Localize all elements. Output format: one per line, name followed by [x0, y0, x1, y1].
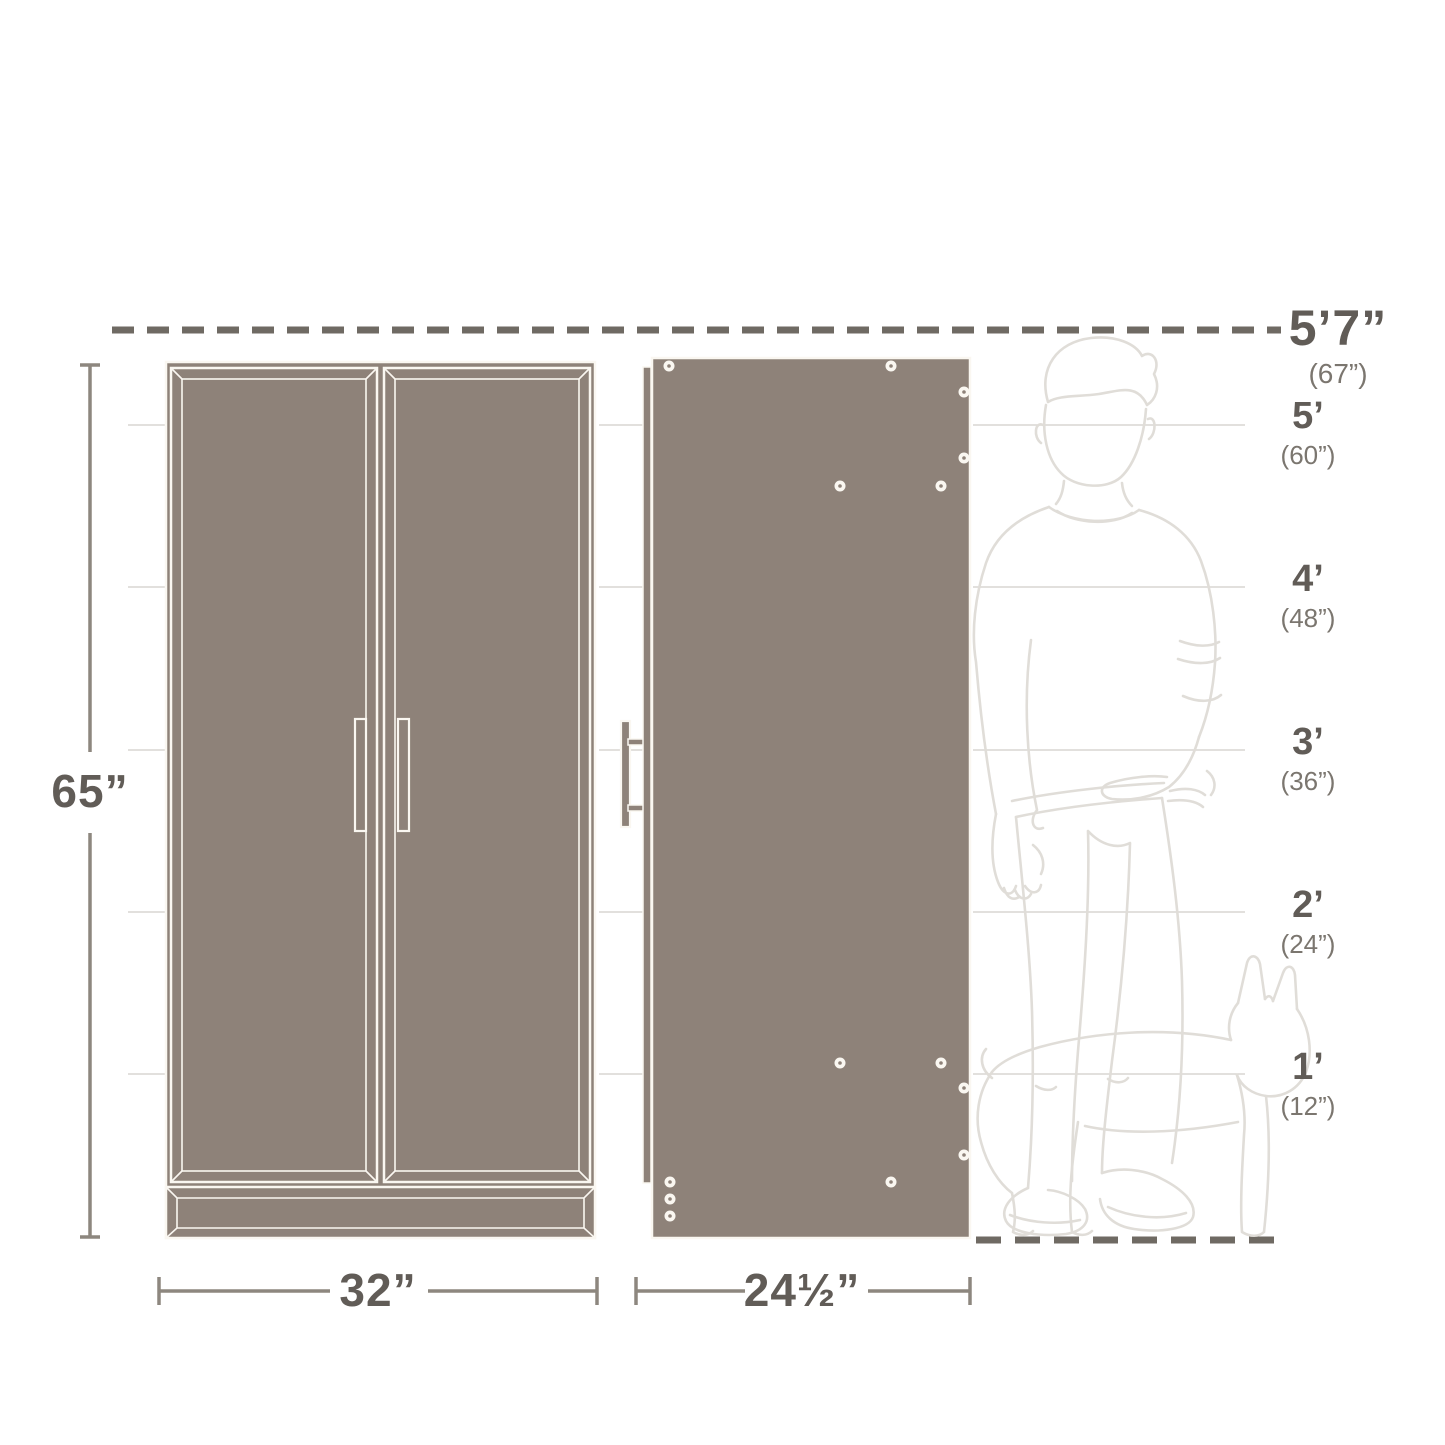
scale-inches-label: (48”): [1233, 605, 1383, 631]
person-right-shoe: [1100, 1170, 1194, 1231]
person-silhouette: [974, 337, 1221, 1235]
scale-inches-label: (24”): [1233, 931, 1383, 957]
side-panel: [652, 358, 970, 1238]
cabinet-right-door: [384, 368, 590, 1182]
scale-feet-label: 2’: [1233, 886, 1383, 924]
scale-feet-label: 1’: [1233, 1048, 1383, 1086]
scale-feet-label: 3’: [1233, 723, 1383, 761]
scale-marker-5ft: 5’ (60”): [1233, 397, 1383, 468]
scale-marker-2ft: 2’ (24”): [1233, 886, 1383, 957]
scale-feet-label: 4’: [1233, 560, 1383, 598]
dog-ear: [1238, 956, 1265, 1003]
cabinet-side-view: [621, 358, 970, 1238]
person-left-shoe: [1004, 1188, 1087, 1235]
right-door-handle: [398, 719, 409, 831]
door-edge-profile: [643, 367, 651, 1183]
scale-inches-label: (36”): [1233, 768, 1383, 794]
cabinet-left-door: [171, 368, 377, 1182]
cabinet-base: [166, 1187, 595, 1238]
scale-inches-label: (12”): [1233, 1093, 1383, 1119]
scale-max-feet-label: 5’7”: [1263, 303, 1413, 353]
left-door-handle: [355, 719, 366, 831]
height-dimension-label: 65”: [28, 768, 152, 814]
depth-dimension-label: 24½”: [722, 1267, 882, 1313]
size-comparison-diagram: 65” 32” 24½” 5’7” (67”) 5’ (60”) 4’ (48”…: [0, 0, 1445, 1445]
cabinet-front-view: [166, 362, 595, 1238]
scale-inches-label: (60”): [1233, 442, 1383, 468]
scale-marker-3ft: 3’ (36”): [1233, 723, 1383, 794]
scale-max-inches-label: (67”): [1263, 360, 1413, 388]
diagram-linework: [0, 0, 1445, 1445]
scale-feet-label: 5’: [1233, 397, 1383, 435]
width-dimension-label: 32”: [316, 1267, 440, 1313]
person-hair: [1045, 337, 1157, 405]
scale-marker-1ft: 1’ (12”): [1233, 1048, 1383, 1119]
scale-marker-max: 5’7” (67”): [1263, 303, 1413, 388]
scale-marker-4ft: 4’ (48”): [1233, 560, 1383, 631]
